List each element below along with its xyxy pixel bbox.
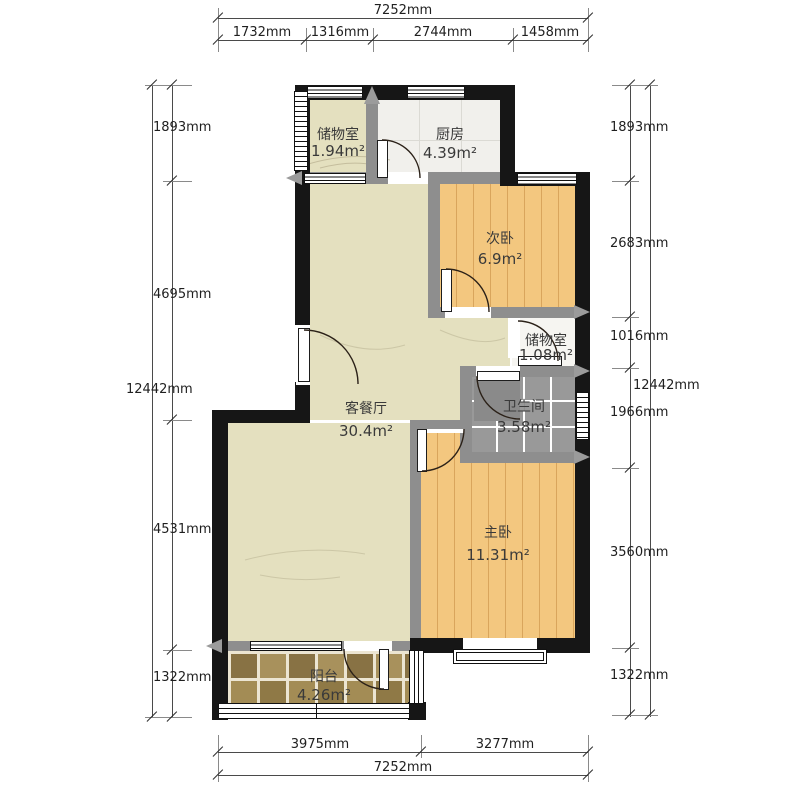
arrow-right-1-icon (574, 305, 590, 319)
ext-line (612, 468, 639, 469)
ext-line (163, 650, 192, 651)
room-area-balcony: 4.26m² (288, 686, 360, 704)
dim-left-seg-2: 4695mm (153, 287, 207, 302)
room-label-balcony: 阳台 (288, 666, 360, 686)
room-label-master: 主卧 (462, 522, 534, 542)
ext-line (612, 317, 639, 318)
room-label-living: 客餐厅 (324, 398, 408, 418)
dim-line-bottom-total (218, 775, 588, 776)
ext-line (163, 420, 192, 421)
dim-left-total: 12442mm (126, 382, 190, 397)
room-label-storage-1: 储物室 (302, 124, 374, 144)
dim-right-seg-1: 1893mm (610, 120, 664, 135)
dim-right-seg-4: 1966mm (610, 405, 664, 420)
ext-line (612, 85, 658, 86)
ext-line (612, 181, 639, 182)
room-area-kitchen: 4.39m² (414, 144, 486, 162)
dim-right-seg-2: 2683mm (610, 236, 664, 251)
dim-left-seg-1: 1893mm (153, 120, 207, 135)
dim-left-seg-3: 4531mm (153, 522, 207, 537)
dim-top-seg-2: 1316mm (300, 25, 380, 40)
room-area-storage-1: 1.94m² (302, 142, 374, 160)
room-label-kitchen: 厨房 (414, 124, 486, 144)
dim-bottom-total: 7252mm (353, 760, 453, 775)
dim-top-total: 7252mm (353, 3, 453, 18)
arc-bedroom2-door (446, 269, 489, 312)
dim-line-top-segments (218, 40, 588, 41)
ext-line (163, 181, 192, 182)
arrow-right-2-icon (574, 364, 590, 378)
dim-line-top-total (218, 18, 588, 19)
arc-entry-door (304, 330, 358, 384)
dim-bottom-seg-1: 3975mm (280, 737, 360, 752)
room-area-living: 30.4m² (324, 422, 408, 440)
room-label-bedroom2: 次卧 (464, 228, 536, 248)
arrow-right-3-icon (574, 450, 590, 464)
dim-top-seg-3: 2744mm (403, 25, 483, 40)
arrow-up-icon (364, 86, 380, 104)
arrow-left-balcony-icon (206, 639, 222, 653)
room-area-storage-2: 1.08m² (506, 346, 586, 364)
room-area-master: 11.31m² (462, 546, 534, 564)
dim-line-left-total (152, 85, 153, 717)
room-area-bedroom2: 6.9m² (464, 250, 536, 268)
dim-top-seg-1: 1732mm (222, 25, 302, 40)
ext-line (612, 715, 658, 716)
arrow-left-storage-icon (286, 171, 302, 185)
dim-right-seg-3: 1016mm (610, 329, 664, 344)
ext-line (612, 648, 639, 649)
dim-right-seg-6: 1322mm (610, 668, 664, 683)
ext-line (612, 368, 639, 369)
dim-right-total: 12442mm (633, 378, 697, 393)
dim-line-bottom-segments (218, 752, 588, 753)
floor-plan-canvas: 储物室 1.94m² 厨房 4.39m² 次卧 6.9m² 储物室 1.08m²… (0, 0, 800, 800)
room-label-bathroom: 卫生间 (488, 396, 560, 416)
ext-line (421, 735, 422, 758)
dim-top-seg-4: 1458mm (510, 25, 590, 40)
dim-bottom-seg-2: 3277mm (465, 737, 545, 752)
room-area-bathroom: 3.58m² (488, 418, 560, 436)
dim-line-right-total (650, 85, 651, 717)
dim-left-seg-4: 1322mm (153, 670, 207, 685)
arc-master-door (422, 429, 464, 471)
dim-right-seg-5: 3560mm (610, 545, 664, 560)
